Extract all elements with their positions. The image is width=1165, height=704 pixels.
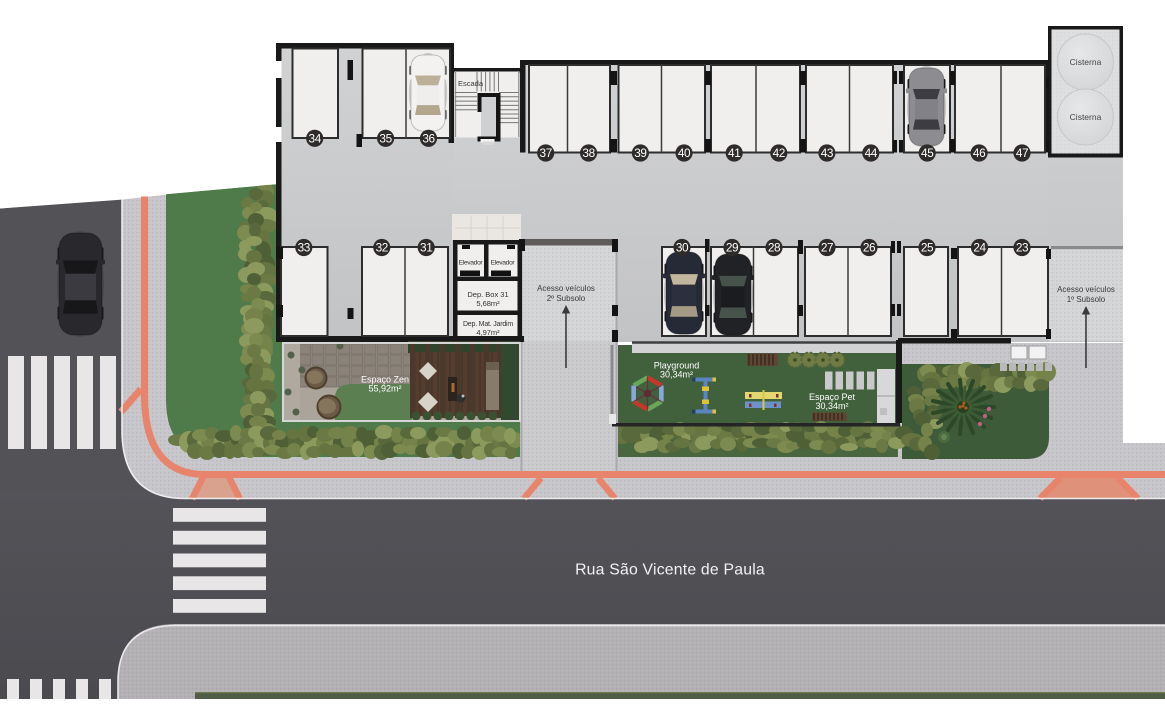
svg-text:26: 26 <box>863 241 876 255</box>
svg-text:27: 27 <box>821 241 833 255</box>
svg-text:34: 34 <box>309 131 322 145</box>
svg-text:40: 40 <box>678 146 691 160</box>
svg-text:37: 37 <box>540 146 552 160</box>
svg-text:36: 36 <box>422 131 435 145</box>
svg-text:4,97m²: 4,97m² <box>476 328 500 337</box>
svg-text:41: 41 <box>728 146 740 160</box>
svg-text:Dep. Mat. Jardim: Dep. Mat. Jardim <box>463 321 513 328</box>
svg-text:35: 35 <box>379 131 392 145</box>
svg-text:33: 33 <box>298 241 311 255</box>
svg-text:30,34m²: 30,34m² <box>815 401 848 411</box>
svg-text:29: 29 <box>726 241 738 255</box>
svg-text:Elevador: Elevador <box>491 260 516 267</box>
svg-text:2º Subsolo: 2º Subsolo <box>547 294 586 303</box>
svg-text:30,34m²: 30,34m² <box>660 370 693 380</box>
svg-text:Rua São Vicente de Paula: Rua São Vicente de Paula <box>575 562 765 579</box>
svg-text:30: 30 <box>676 241 689 255</box>
svg-text:Cisterna: Cisterna <box>1070 112 1102 122</box>
svg-text:44: 44 <box>865 146 878 160</box>
svg-text:28: 28 <box>768 241 781 255</box>
svg-text:Escada: Escada <box>458 79 484 88</box>
svg-text:25: 25 <box>921 241 934 255</box>
svg-text:47: 47 <box>1016 146 1028 160</box>
svg-text:1º Subsolo: 1º Subsolo <box>1067 295 1106 304</box>
svg-text:43: 43 <box>821 146 834 160</box>
svg-text:Cisterna: Cisterna <box>1070 57 1102 67</box>
svg-text:Dep. Box 31: Dep. Box 31 <box>467 290 508 299</box>
svg-text:42: 42 <box>773 146 785 160</box>
svg-text:32: 32 <box>376 241 388 255</box>
svg-text:5,68m²: 5,68m² <box>476 299 500 308</box>
svg-text:Elevador: Elevador <box>459 260 484 267</box>
svg-text:55,92m²: 55,92m² <box>368 384 401 394</box>
svg-text:38: 38 <box>582 146 595 160</box>
svg-text:39: 39 <box>634 146 646 160</box>
svg-text:Acesso veículos: Acesso veículos <box>537 284 595 293</box>
svg-text:23: 23 <box>1016 241 1029 255</box>
svg-text:45: 45 <box>921 146 934 160</box>
svg-text:Acesso veículos: Acesso veículos <box>1057 285 1115 294</box>
svg-text:31: 31 <box>420 241 432 255</box>
svg-text:46: 46 <box>973 146 986 160</box>
svg-text:24: 24 <box>973 241 986 255</box>
